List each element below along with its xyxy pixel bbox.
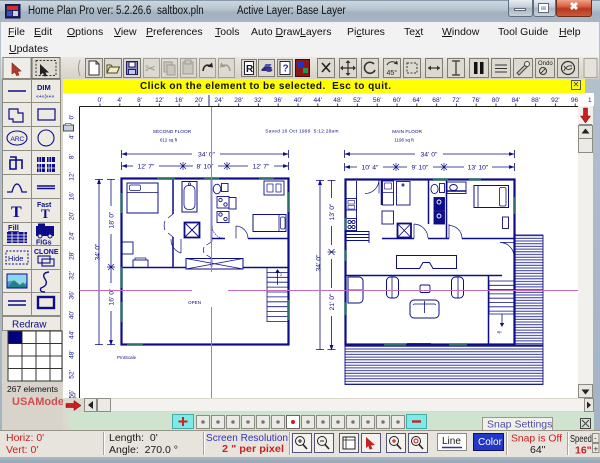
svg-text:88': 88'	[531, 97, 540, 104]
svg-text:CLONE: CLONE	[34, 249, 59, 256]
svg-text:OPEN: OPEN	[188, 300, 201, 305]
svg-text:-: -	[594, 434, 597, 443]
svg-text:SECOND FLOOR: SECOND FLOOR	[153, 129, 192, 135]
svg-text:8': 8'	[137, 97, 142, 104]
svg-text:36': 36'	[274, 97, 283, 104]
svg-text:28': 28'	[69, 251, 76, 260]
svg-text:48': 48'	[333, 97, 342, 104]
svg-text:12': 12'	[69, 172, 76, 181]
svg-text:8': 8'	[69, 154, 76, 159]
svg-text:12' 7": 12' 7"	[138, 164, 156, 171]
svg-text:16": 16"	[575, 445, 592, 457]
svg-text:13' 0": 13' 0"	[329, 203, 336, 221]
svg-text:34' 0": 34' 0"	[95, 243, 102, 261]
svg-text:+: +	[594, 445, 599, 454]
svg-text:24': 24'	[215, 97, 224, 104]
svg-text:2 " per pixel: 2 " per pixel	[222, 443, 284, 455]
svg-text:20': 20'	[195, 97, 204, 104]
svg-text:1196 sq ft: 1196 sq ft	[394, 138, 414, 143]
svg-text:Hide: Hide	[8, 254, 23, 263]
svg-text:Snap is Off: Snap is Off	[511, 433, 562, 445]
svg-text:20': 20'	[69, 212, 76, 221]
svg-text:52': 52'	[353, 97, 362, 104]
svg-text:Line: Line	[442, 436, 461, 447]
svg-text:T: T	[41, 206, 50, 221]
svg-text:21' 0": 21' 0"	[329, 293, 336, 311]
svg-text:USAMode: USAMode	[12, 396, 63, 408]
svg-text:64": 64"	[530, 444, 546, 456]
svg-text:4': 4'	[69, 134, 76, 139]
svg-text:76': 76'	[472, 97, 481, 104]
svg-text:0': 0'	[98, 97, 103, 104]
svg-text:ARC: ARC	[11, 136, 25, 143]
svg-text:18' 0": 18' 0"	[109, 211, 116, 229]
svg-text:9' 10": 9' 10"	[412, 165, 430, 172]
svg-text:MAIN FLOOR: MAIN FLOOR	[392, 129, 422, 135]
svg-text:FIGs: FIGs	[36, 240, 52, 247]
svg-text:68': 68'	[432, 97, 441, 104]
svg-text:Length: 0': Length: 0'	[109, 432, 158, 444]
svg-text:0': 0'	[69, 115, 76, 120]
svg-text:44': 44'	[69, 331, 76, 340]
svg-text:84': 84'	[512, 97, 521, 104]
svg-text:Fill: Fill	[8, 223, 19, 232]
svg-text:36': 36'	[69, 291, 76, 300]
svg-text:612 sq ft: 612 sq ft	[160, 138, 178, 143]
svg-text:Snap Settings: Snap Settings	[487, 419, 552, 431]
svg-text:32': 32'	[69, 271, 76, 280]
svg-text:60': 60'	[393, 97, 402, 104]
svg-text:Ondo: Ondo	[538, 61, 553, 67]
svg-text:up: up	[497, 329, 502, 334]
svg-text:Redraw: Redraw	[12, 320, 47, 331]
svg-text:24': 24'	[69, 232, 76, 241]
svg-text:4': 4'	[117, 97, 122, 104]
svg-text:48': 48'	[69, 350, 76, 359]
svg-text:44': 44'	[314, 97, 323, 104]
svg-text:Vert: 0': Vert: 0'	[6, 444, 38, 456]
svg-text:Horiz: 0': Horiz: 0'	[6, 432, 44, 444]
svg-text:R: R	[246, 64, 254, 75]
svg-text:28': 28'	[234, 97, 243, 104]
svg-text:267 elements: 267 elements	[7, 384, 58, 394]
svg-text:45°: 45°	[387, 69, 398, 77]
svg-text:?: ?	[283, 64, 289, 75]
svg-text:Saved 16 Oct 1999 5:12:28am: Saved 16 Oct 1999 5:12:28am	[265, 129, 338, 135]
svg-text:34' 0": 34' 0"	[198, 152, 216, 159]
svg-text:Angle: 270.0 °: Angle: 270.0 °	[109, 444, 178, 456]
svg-text:40': 40'	[294, 97, 303, 104]
svg-text:DIM: DIM	[37, 83, 51, 92]
svg-text:«+»¦«+»: «+»¦«+»	[36, 94, 54, 100]
svg-text:32': 32'	[254, 97, 263, 104]
svg-text:12' 7": 12' 7"	[253, 164, 271, 171]
svg-text:92': 92'	[551, 97, 560, 104]
svg-text:34' 0": 34' 0"	[316, 254, 323, 272]
svg-text:56': 56'	[373, 97, 382, 104]
svg-text:Color: Color	[478, 437, 503, 448]
svg-text:52': 52'	[69, 370, 76, 379]
svg-text:13' 10": 13' 10"	[468, 165, 489, 172]
svg-text:72': 72'	[452, 97, 461, 104]
svg-text:80': 80'	[492, 97, 501, 104]
svg-text:✂: ✂	[145, 61, 156, 76]
svg-text:34' 0": 34' 0"	[421, 152, 439, 159]
svg-text:16': 16'	[175, 97, 184, 104]
svg-text:96': 96'	[571, 97, 578, 104]
svg-text:T: T	[11, 204, 22, 221]
svg-text:40': 40'	[69, 311, 76, 320]
svg-text:Speed:: Speed:	[570, 434, 594, 445]
svg-text:1: 1	[588, 97, 592, 104]
svg-text:10' 4": 10' 4"	[362, 165, 380, 172]
svg-text:64': 64'	[413, 97, 422, 104]
svg-text:PrntScale: PrntScale	[117, 355, 137, 360]
svg-text:16': 16'	[69, 192, 76, 201]
svg-text:12': 12'	[155, 97, 164, 104]
